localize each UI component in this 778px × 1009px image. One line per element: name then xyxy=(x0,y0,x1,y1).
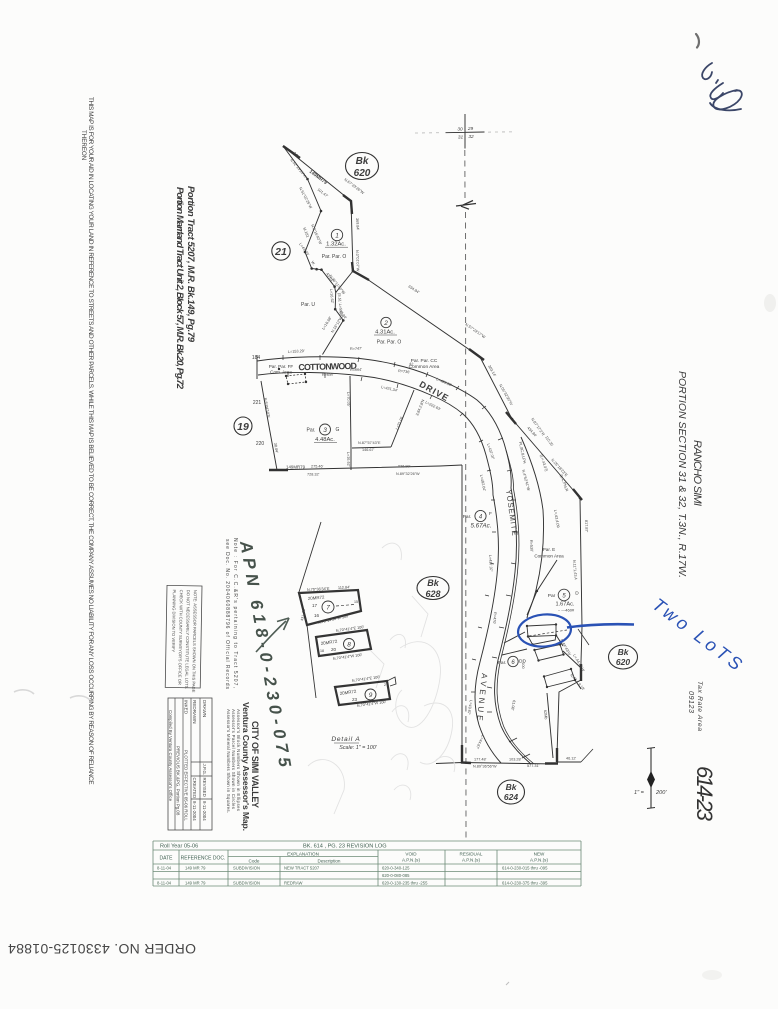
svg-text:8: 8 xyxy=(347,642,351,649)
svg-text:614-23: 614-23 xyxy=(692,766,717,822)
svg-text:Code: Code xyxy=(249,859,260,864)
svg-text:Par.: Par. xyxy=(463,514,472,520)
svg-text:Par. E: Par. E xyxy=(543,547,556,552)
svg-text:PLOTTED EFFECTIVE 05-06 ROLL: PLOTTED EFFECTIVE 05-06 ROLL xyxy=(184,750,189,821)
svg-text:Par. Par. CC: Par. Par. CC xyxy=(411,358,438,364)
svg-text:7: 7 xyxy=(326,605,330,612)
svg-text:Bk: Bk xyxy=(356,156,369,167)
svg-text:16: 16 xyxy=(314,613,320,618)
svg-text:614-0-230-375 thru -395: 614-0-230-375 thru -395 xyxy=(502,881,548,886)
svg-text:N.0°01'07"W: N.0°01'07"W xyxy=(355,250,360,272)
svg-text:REDRAW: REDRAW xyxy=(284,881,303,886)
svg-text:Common Area: Common Area xyxy=(534,554,564,559)
svg-text:5.67Ac.: 5.67Ac. xyxy=(471,523,492,530)
svg-text:A.P.N.(s): A.P.N.(s) xyxy=(402,858,421,863)
svg-text:EXPLANATION: EXPLANATION xyxy=(287,852,319,857)
svg-text:Ventura County Assessor's Map.: Ventura County Assessor's Map. xyxy=(241,702,251,831)
svg-text:369.84': 369.84' xyxy=(355,218,360,231)
svg-text:BK. 614 , PG. 23 REVI: BK. 614 , PG. 23 REVISION LOG xyxy=(303,844,387,850)
svg-text:VOID: VOID xyxy=(405,852,417,857)
svg-text:Scale: 1" = 100': Scale: 1" = 100' xyxy=(339,745,378,751)
svg-text:F: F xyxy=(489,511,492,517)
svg-text:32: 32 xyxy=(468,134,474,140)
svg-text:4.31Ac.: 4.31Ac. xyxy=(375,330,395,336)
svg-text:Par: Par xyxy=(548,593,556,599)
svg-text:N.89°32'26"W: N.89°32'26"W xyxy=(396,472,420,476)
svg-text:200': 200' xyxy=(655,790,667,796)
svg-text:J.P.G.: J.P.G. xyxy=(202,764,207,776)
svg-text:614-0-230-015 thru -095: 614-0-230-015 thru -095 xyxy=(502,866,548,871)
svg-text:R=530': R=530' xyxy=(529,540,534,552)
svg-text:18: 18 xyxy=(320,649,324,653)
svg-text:628: 628 xyxy=(425,589,440,599)
svg-text:62Mb: 62Mb xyxy=(543,710,548,720)
svg-text:23: 23 xyxy=(352,697,358,702)
svg-text:RANCHO SIMI: RANCHO SIMI xyxy=(691,440,703,506)
svg-text:620: 620 xyxy=(354,168,371,179)
svg-text:RESIDUAL: RESIDUAL xyxy=(460,852,483,857)
svg-text:R=664': R=664' xyxy=(350,368,362,372)
svg-text:275.46': 275.46' xyxy=(311,465,324,469)
svg-text:817.87': 817.87' xyxy=(584,520,588,533)
svg-text:3: 3 xyxy=(323,427,327,434)
svg-text:620: 620 xyxy=(616,657,630,667)
svg-text:#26.90': #26.90' xyxy=(398,465,411,469)
svg-text:PORTION SECTION 31 & 32, T.3N.: PORTION SECTION 31 & 32, T.3N., R.17W. xyxy=(676,371,688,578)
svg-text:30: 30 xyxy=(457,126,463,132)
svg-text:NEW: NEW xyxy=(534,852,545,857)
svg-text:SUBDIVISION: SUBDIVISION xyxy=(233,881,260,886)
svg-text:DATE: DATE xyxy=(160,856,174,862)
svg-text:29: 29 xyxy=(467,126,474,132)
svg-text:112.84': 112.84' xyxy=(338,585,351,590)
svg-text:21: 21 xyxy=(274,246,287,258)
svg-text:Bk: Bk xyxy=(427,578,439,588)
svg-text:DRAWN: DRAWN xyxy=(202,700,207,717)
svg-text:Portion Tract 5207, M.R. Bk.14: Portion Tract 5207, M.R. Bk.149, Pg.79 xyxy=(185,186,196,343)
svg-text:728.32': 728.32' xyxy=(307,473,320,477)
svg-text:A.P.N.(s): A.P.N.(s) xyxy=(530,858,549,863)
svg-text:Tax Rate Area: Tax Rate Area xyxy=(696,681,703,731)
svg-text:31: 31 xyxy=(458,135,464,141)
svg-text:Com. Area: Com. Area xyxy=(270,370,292,375)
svg-text:9: 9 xyxy=(369,692,373,699)
svg-text:46.12': 46.12' xyxy=(566,757,577,761)
svg-text:2: 2 xyxy=(384,683,386,687)
svg-text:NEW TRACT 5207: NEW TRACT 5207 xyxy=(284,866,320,871)
svg-text:Roll Year 05-06: Roll Year 05-06 xyxy=(160,844,198,850)
svg-text:09123: 09123 xyxy=(687,691,696,713)
svg-text:1" =: 1" = xyxy=(634,790,645,796)
svg-text:4.48Ac.: 4.48Ac. xyxy=(315,437,335,443)
svg-text:1: 1 xyxy=(335,233,339,240)
svg-text:Common Area: Common Area xyxy=(409,364,440,370)
svg-text:184: 184 xyxy=(252,355,261,361)
svg-text:620-0-340-125: 620-0-340-125 xyxy=(382,866,410,871)
svg-text:17: 17 xyxy=(312,603,318,608)
svg-text:REVISED: REVISED xyxy=(202,778,207,797)
svg-text:42: 42 xyxy=(409,362,414,366)
svg-text:20: 20 xyxy=(331,647,337,652)
svg-text:624: 624 xyxy=(504,792,518,802)
svg-text:INKED: INKED xyxy=(184,700,189,715)
svg-text:220: 220 xyxy=(256,441,265,447)
svg-text:Par.: Par. xyxy=(307,428,316,434)
svg-text:THIS MAP IS FOR YOUR AID IN LO: THIS MAP IS FOR YOUR AID IN LOCATING YOU… xyxy=(87,97,94,785)
svg-text:149 MR 79: 149 MR 79 xyxy=(185,881,206,886)
svg-text:8-11-2004: 8-11-2004 xyxy=(202,801,207,821)
svg-text:~ —460#: ~ —460# xyxy=(558,608,575,613)
svg-text:Bk: Bk xyxy=(506,782,518,792)
svg-text:R=650': R=650' xyxy=(322,373,334,377)
svg-text:Portion Marrland Tract Unit 2,: Portion Marrland Tract Unit 2, Block 57,… xyxy=(174,187,185,390)
svg-text:Par. Par. FF: Par. Par. FF xyxy=(269,364,294,369)
svg-text:Compiled By Ventura County: Compiled By Ventura County Assessor's Of… xyxy=(168,710,173,802)
svg-text:8-11-2004: 8-11-2004 xyxy=(192,801,197,821)
svg-text:620-0-080-085: 620-0-080-085 xyxy=(382,873,410,878)
svg-text:Assessor's Mineral Numbers Sho: Assessor's Mineral Numbers Shown in Squa… xyxy=(226,709,231,813)
svg-text:Par. Par. O: Par. Par. O xyxy=(377,340,402,346)
svg-text:R=747': R=747' xyxy=(350,347,362,351)
svg-text:149 MR 79: 149 MR 79 xyxy=(185,866,206,871)
svg-text:A.P.N.(s): A.P.N.(s) xyxy=(462,858,481,863)
svg-text:REDRAWN: REDRAWN xyxy=(192,700,197,724)
svg-text:D: D xyxy=(575,591,579,597)
svg-text:see Doc. No. 2004060888796 of: see Doc. No. 2004060888796 of Official R… xyxy=(224,539,230,690)
svg-text:ORDER NO. 4330125-01884: ORDER NO. 4330125-01884 xyxy=(8,941,196,957)
svg-text:103.28': 103.28' xyxy=(509,758,522,762)
svg-text:Par.: Par. xyxy=(498,660,507,666)
svg-text:Note : For C.C.&R's pertaining: Note : For C.C.&R's pertaining to Tract … xyxy=(232,538,238,688)
svg-text:Description: Description xyxy=(318,859,341,864)
svg-text:SUBDIVISION: SUBDIVISION xyxy=(233,866,260,871)
svg-text:221: 221 xyxy=(253,400,262,406)
svg-text:146.67': 146.67' xyxy=(362,448,375,452)
svg-text:CREATED: CREATED xyxy=(192,778,197,799)
svg-text:15: 15 xyxy=(354,600,358,604)
svg-text:8-11-04: 8-11-04 xyxy=(157,866,172,871)
svg-text:Detail A: Detail A xyxy=(331,736,360,743)
svg-text:THEREON: THEREON xyxy=(80,130,87,160)
svg-text:620-0-130-235 thru -255: 620-0-130-235 thru -255 xyxy=(382,881,428,886)
svg-text:N.89°36'56"W: N.89°36'56"W xyxy=(473,765,497,769)
svg-text:Bk: Bk xyxy=(618,647,630,657)
svg-text:G: G xyxy=(336,427,340,433)
svg-text:Par. U: Par. U xyxy=(301,302,315,308)
svg-text:L=70.05': L=70.05' xyxy=(346,392,351,407)
svg-text:~100: ~100 xyxy=(521,660,525,669)
svg-text:19: 19 xyxy=(237,421,249,433)
svg-text:PREVIOUS BK.&PG. Portion Pg: PREVIOUS BK.&PG. Portion Pg.08 xyxy=(176,746,181,816)
svg-text:177.48': 177.48' xyxy=(474,758,487,762)
svg-text:COTTONWOOD: COTTONWOOD xyxy=(298,361,357,373)
svg-text:N.87°57'43"E: N.87°57'43"E xyxy=(358,441,381,445)
svg-text:8-11-04: 8-11-04 xyxy=(157,881,172,886)
svg-text:149MR79: 149MR79 xyxy=(286,465,306,470)
svg-text:577.31': 577.31' xyxy=(527,764,540,768)
svg-text:2: 2 xyxy=(383,320,388,327)
svg-text:L=16.62': L=16.62' xyxy=(346,452,351,467)
svg-text:REFERENCE DOC.: REFERENCE DOC. xyxy=(181,856,226,862)
svg-text:Par. Par. O: Par. Par. O xyxy=(322,254,347,260)
svg-text:1.32Ac.: 1.32Ac. xyxy=(326,242,346,248)
